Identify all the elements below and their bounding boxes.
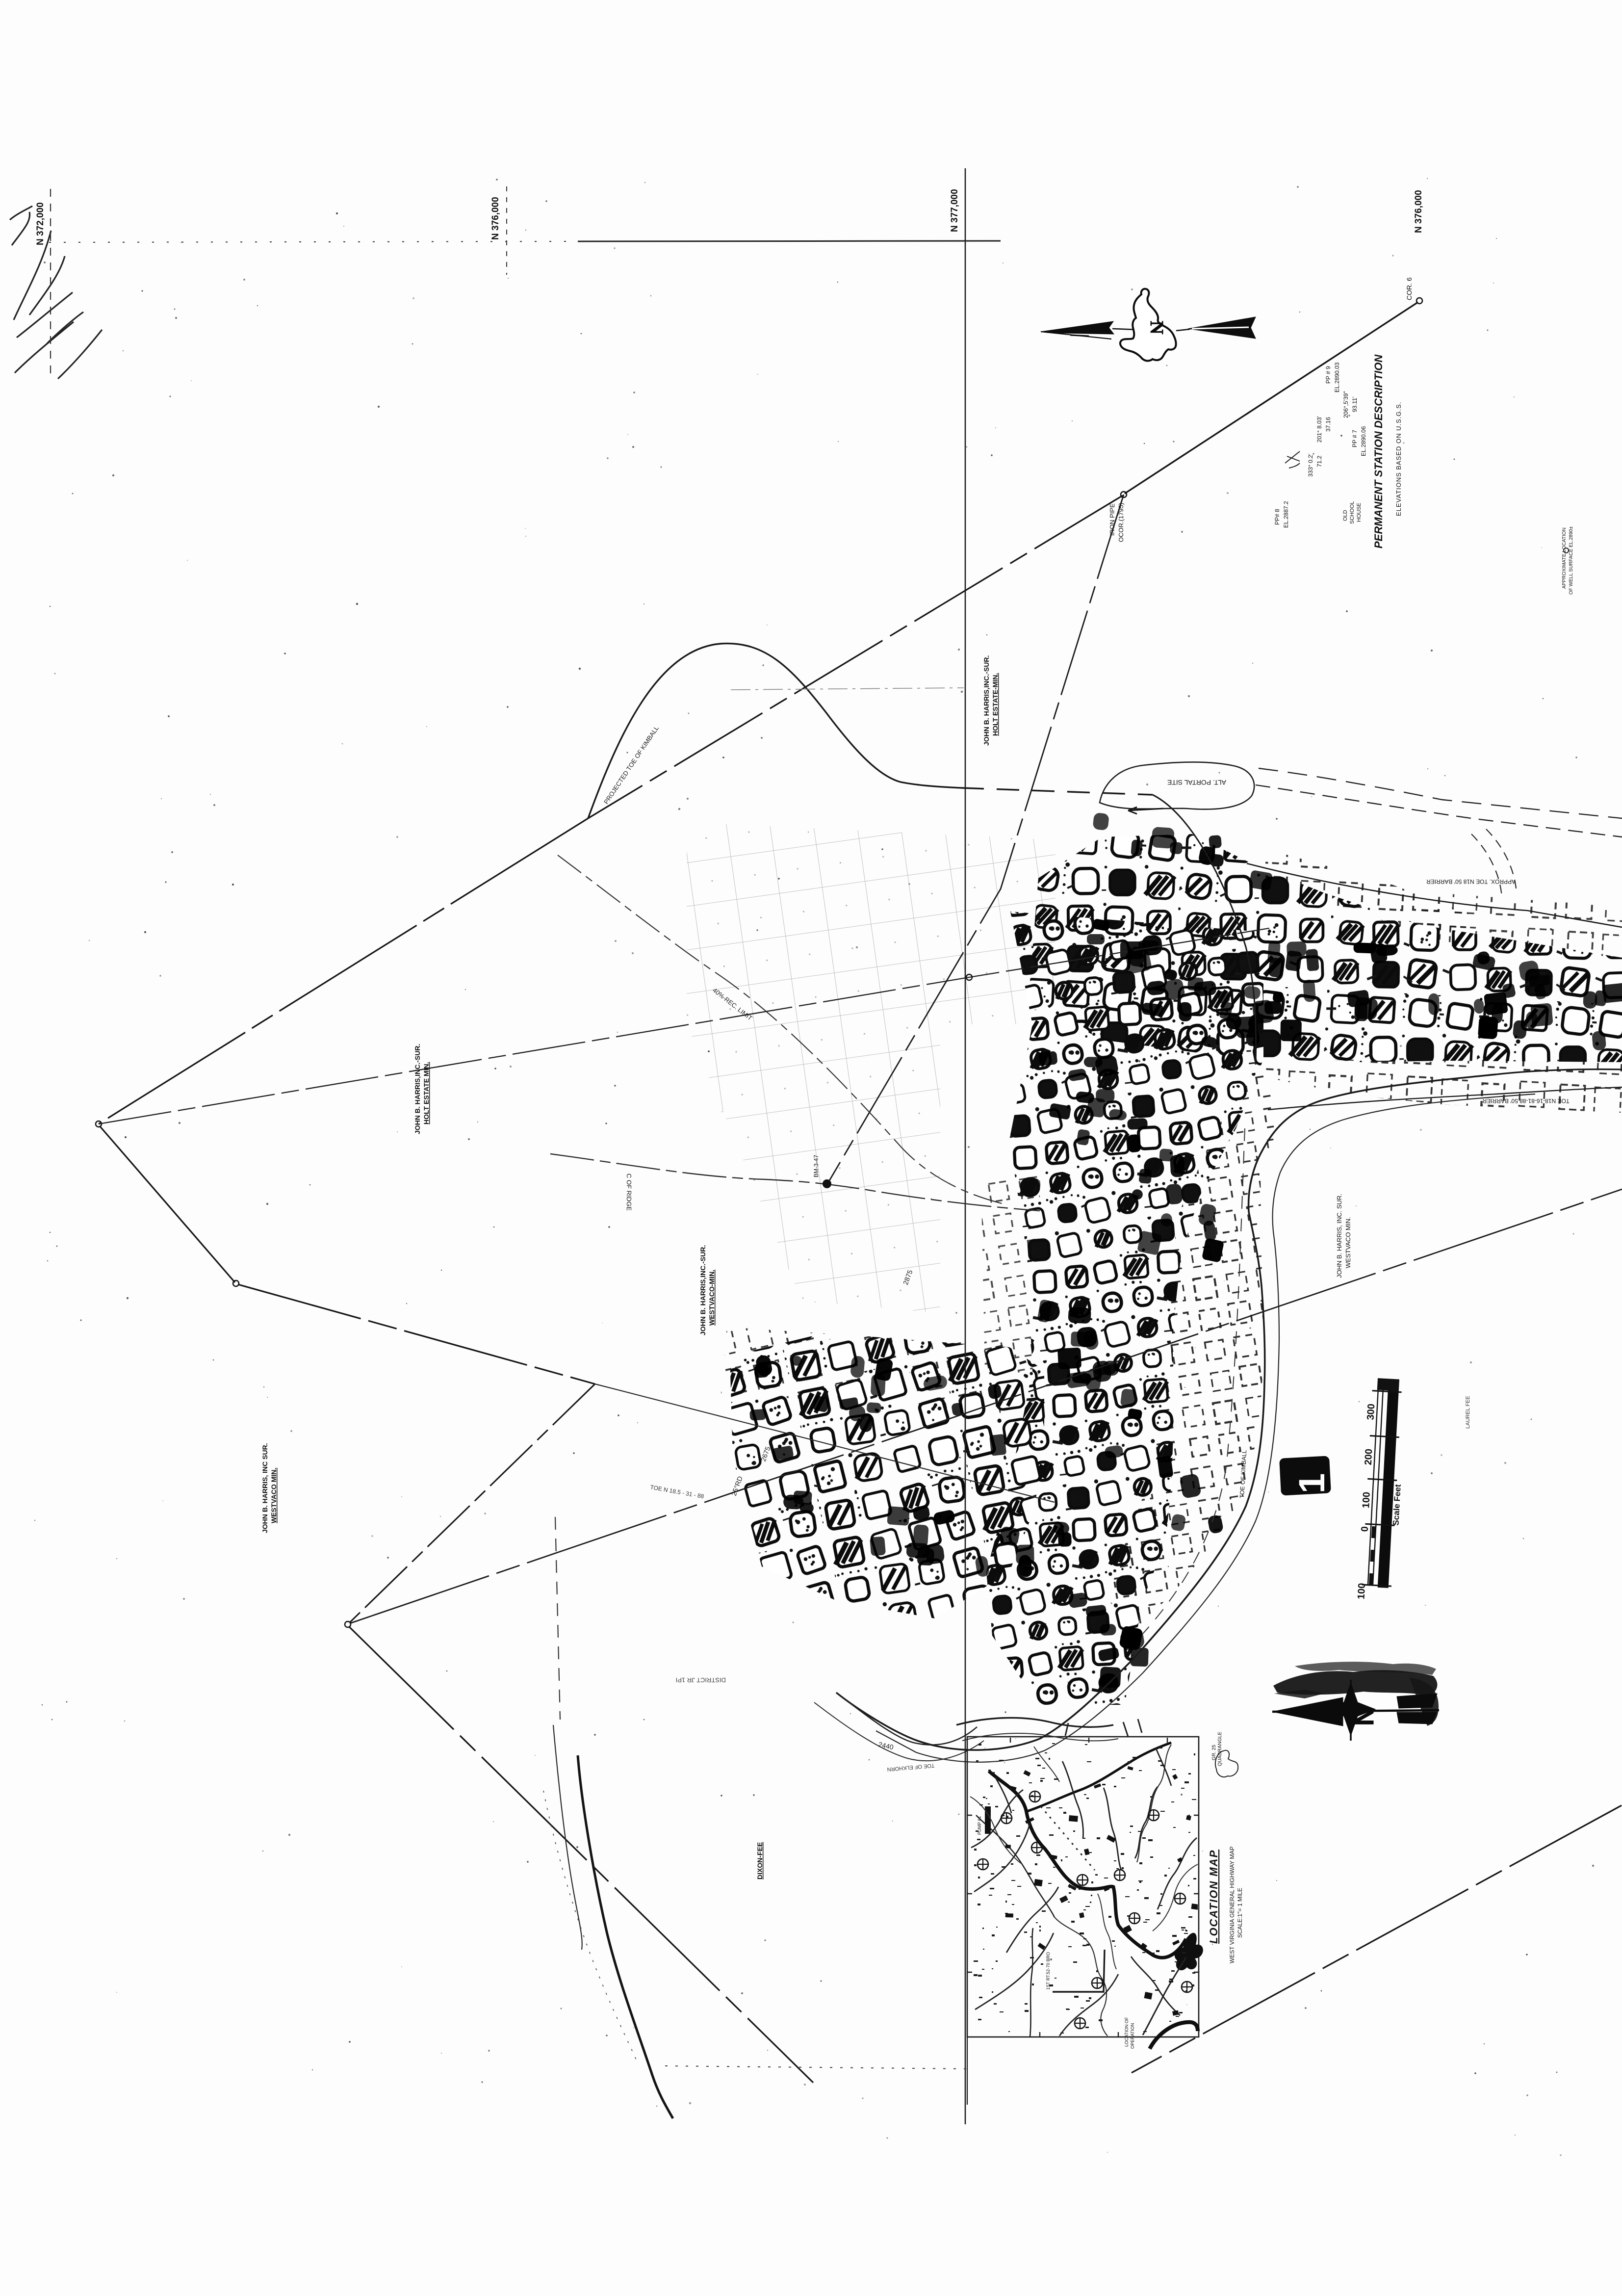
svg-text:TOE N18-16-81-88 50' BARRIE: TOE N18-16-81-88 50' BARRIER <box>1482 1097 1570 1104</box>
svg-text:DISTRICT JR 1PI: DISTRICT JR 1PI <box>676 1676 726 1684</box>
svg-text:N 377,000: N 377,000 <box>950 189 960 232</box>
svg-text:0: 0 <box>1360 1526 1371 1532</box>
svg-text:PP # 7: PP # 7 <box>1351 430 1358 447</box>
svg-text:PERMANENT STATION DESCRIPTION: PERMANENT STATION DESCRIPTION <box>1372 354 1385 548</box>
svg-text:C OF RIDGE: C OF RIDGE <box>625 1174 633 1211</box>
svg-text:N: N <box>1350 1707 1379 1726</box>
svg-text:PUMP 61: PUMP 61 <box>977 1816 982 1835</box>
svg-text:LOCATION OF: LOCATION OF <box>1124 2017 1129 2047</box>
svg-text:OLD: OLD <box>1342 510 1348 521</box>
svg-text:JOHN B. HARRIS, INC SUR.: JOHN B. HARRIS, INC SUR. <box>261 1443 269 1533</box>
svg-text:COR. 6: COR. 6 <box>1405 277 1413 300</box>
svg-text:OCOR.(1795): OCOR.(1795) <box>1117 503 1125 542</box>
svg-text:SCALE:1"= 1 MILE: SCALE:1"= 1 MILE <box>1236 1888 1243 1938</box>
svg-text:APPROX. TOE N18 50' BARRIER: APPROX. TOE N18 50' BARRIER <box>1426 878 1516 885</box>
svg-text:JOHN B. HARRIS, INC. SUR.: JOHN B. HARRIS, INC. SUR. <box>1336 1194 1343 1278</box>
svg-text:PP# 8: PP# 8 <box>1274 509 1281 525</box>
svg-text:100: 100 <box>1361 1491 1372 1508</box>
svg-text:N 376,000: N 376,000 <box>1414 190 1424 233</box>
svg-text:300: 300 <box>1365 1404 1377 1420</box>
svg-text:HOLT ESTATE MIN.: HOLT ESTATE MIN. <box>422 1062 430 1124</box>
svg-text:LOCATION MAP: LOCATION MAP <box>1208 1850 1220 1944</box>
svg-text:1ST RT.52-70 BRO: 1ST RT.52-70 BRO <box>1046 1952 1051 1990</box>
svg-text:JOHN B. HARRIS,INC.-SUR.: JOHN B. HARRIS,INC.-SUR. <box>413 1044 421 1134</box>
svg-text:ALT. PORTAL SITE: ALT. PORTAL SITE <box>1167 779 1226 786</box>
svg-text:WEST VIRGINIA GENERAL HIGHWAY: WEST VIRGINIA GENERAL HIGHWAY MAP <box>1229 1847 1236 1964</box>
svg-text:206°,5'39": 206°,5'39" <box>1342 391 1349 418</box>
svg-text:ELEVATIONS BASED ON U.S.G.S.: ELEVATIONS BASED ON U.S.G.S. <box>1395 402 1402 516</box>
svg-text:BM-3-47: BM-3-47 <box>813 1155 820 1177</box>
svg-text:HOUSE: HOUSE <box>1356 503 1362 522</box>
svg-text:1: 1 <box>1291 1473 1332 1493</box>
svg-text:N: N <box>1146 321 1167 334</box>
svg-text:201° 8.03': 201° 8.03' <box>1316 416 1323 443</box>
svg-text:JOHN B. HARRIS,INC.-SUR.: JOHN B. HARRIS,INC.-SUR. <box>699 1245 707 1335</box>
svg-text:OF WELL SURFACE EL.2890±: OF WELL SURFACE EL.2890± <box>1569 526 1574 595</box>
svg-text:EL.2890.06: EL.2890.06 <box>1360 426 1367 456</box>
svg-text:333° 0.2': 333° 0.2' <box>1307 454 1314 477</box>
svg-text:WESTVACO MIN.: WESTVACO MIN. <box>1344 1217 1352 1268</box>
svg-text:WESTVACO MIN.: WESTVACO MIN. <box>270 1468 278 1523</box>
svg-text:71.2: 71.2 <box>1316 455 1323 467</box>
svg-text:37.16: 37.16 <box>1325 417 1332 432</box>
svg-text:N 376,000: N 376,000 <box>490 197 501 240</box>
svg-text:HOLT ESTATE-MIN.: HOLT ESTATE-MIN. <box>991 673 999 736</box>
svg-text:93.11': 93.11' <box>1351 397 1358 412</box>
svg-text:JOHN B. HARRIS,INC.-SUR.: JOHN B. HARRIS,INC.-SUR. <box>982 655 990 746</box>
svg-text:N 372,000: N 372,000 <box>35 202 46 245</box>
svg-text:200: 200 <box>1363 1448 1375 1465</box>
svg-text:WESTVACO-MIN.: WESTVACO-MIN. <box>708 1270 716 1326</box>
svg-text:LAUREL FEE: LAUREL FEE <box>1465 1396 1471 1429</box>
svg-text:PP # 9: PP # 9 <box>1325 366 1332 384</box>
svg-text:SCHOOL: SCHOOL <box>1349 501 1355 524</box>
svg-text:DIXON-FEE: DIXON-FEE <box>756 1842 764 1879</box>
svg-text:APPROXIMATE LOCATION: APPROXIMATE LOCATION <box>1562 527 1567 589</box>
svg-text:100: 100 <box>1356 1583 1367 1599</box>
svg-text:EL.2887.2: EL.2887.2 <box>1283 501 1289 528</box>
svg-text:OPERATION: OPERATION <box>1130 2023 1135 2049</box>
svg-text:EL.2890.03: EL.2890.03 <box>1334 362 1340 392</box>
svg-text:QUADRANGLE: QUADRANGLE <box>1217 1732 1223 1766</box>
